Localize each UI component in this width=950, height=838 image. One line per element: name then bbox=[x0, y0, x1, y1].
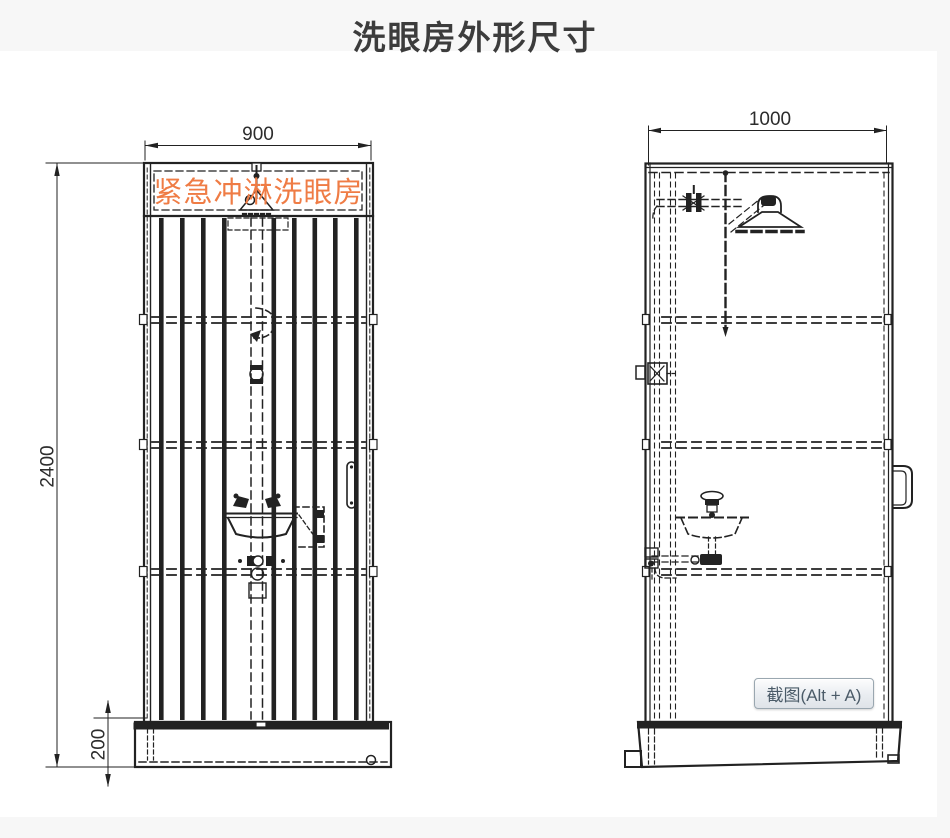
side-base bbox=[625, 722, 901, 767]
drain-hole bbox=[367, 756, 376, 765]
side-rails bbox=[643, 315, 892, 577]
door-handle-side bbox=[893, 466, 912, 508]
technical-drawing bbox=[0, 0, 950, 838]
wall-valve bbox=[636, 363, 675, 384]
dim-2400-lines bbox=[46, 163, 143, 767]
pipe-fitting bbox=[250, 365, 263, 384]
sign-panel-label: 紧急冲淋洗眼房 bbox=[149, 176, 368, 210]
side-view-drawing bbox=[625, 126, 912, 767]
dim-1000-lines bbox=[649, 126, 887, 165]
eyewash-station-icon-side bbox=[645, 492, 748, 581]
dim-2400-label: 2400 bbox=[39, 437, 58, 497]
screenshot-canvas: 洗眼房外形尺寸 bbox=[0, 0, 950, 838]
dim-200-label: 200 bbox=[90, 722, 109, 768]
screenshot-tool-button[interactable]: 截图(Alt + A) bbox=[754, 678, 874, 709]
dim-900-label: 900 bbox=[228, 125, 288, 144]
front-view-drawing bbox=[46, 141, 391, 787]
base-foot bbox=[625, 751, 641, 767]
shower-rod-side bbox=[723, 170, 729, 337]
center-pipe-hidden bbox=[251, 218, 263, 719]
front-base bbox=[135, 722, 391, 767]
dim-1000-label: 1000 bbox=[735, 110, 805, 129]
louver-slats bbox=[159, 218, 359, 720]
shower-head-icon-side bbox=[737, 196, 803, 232]
